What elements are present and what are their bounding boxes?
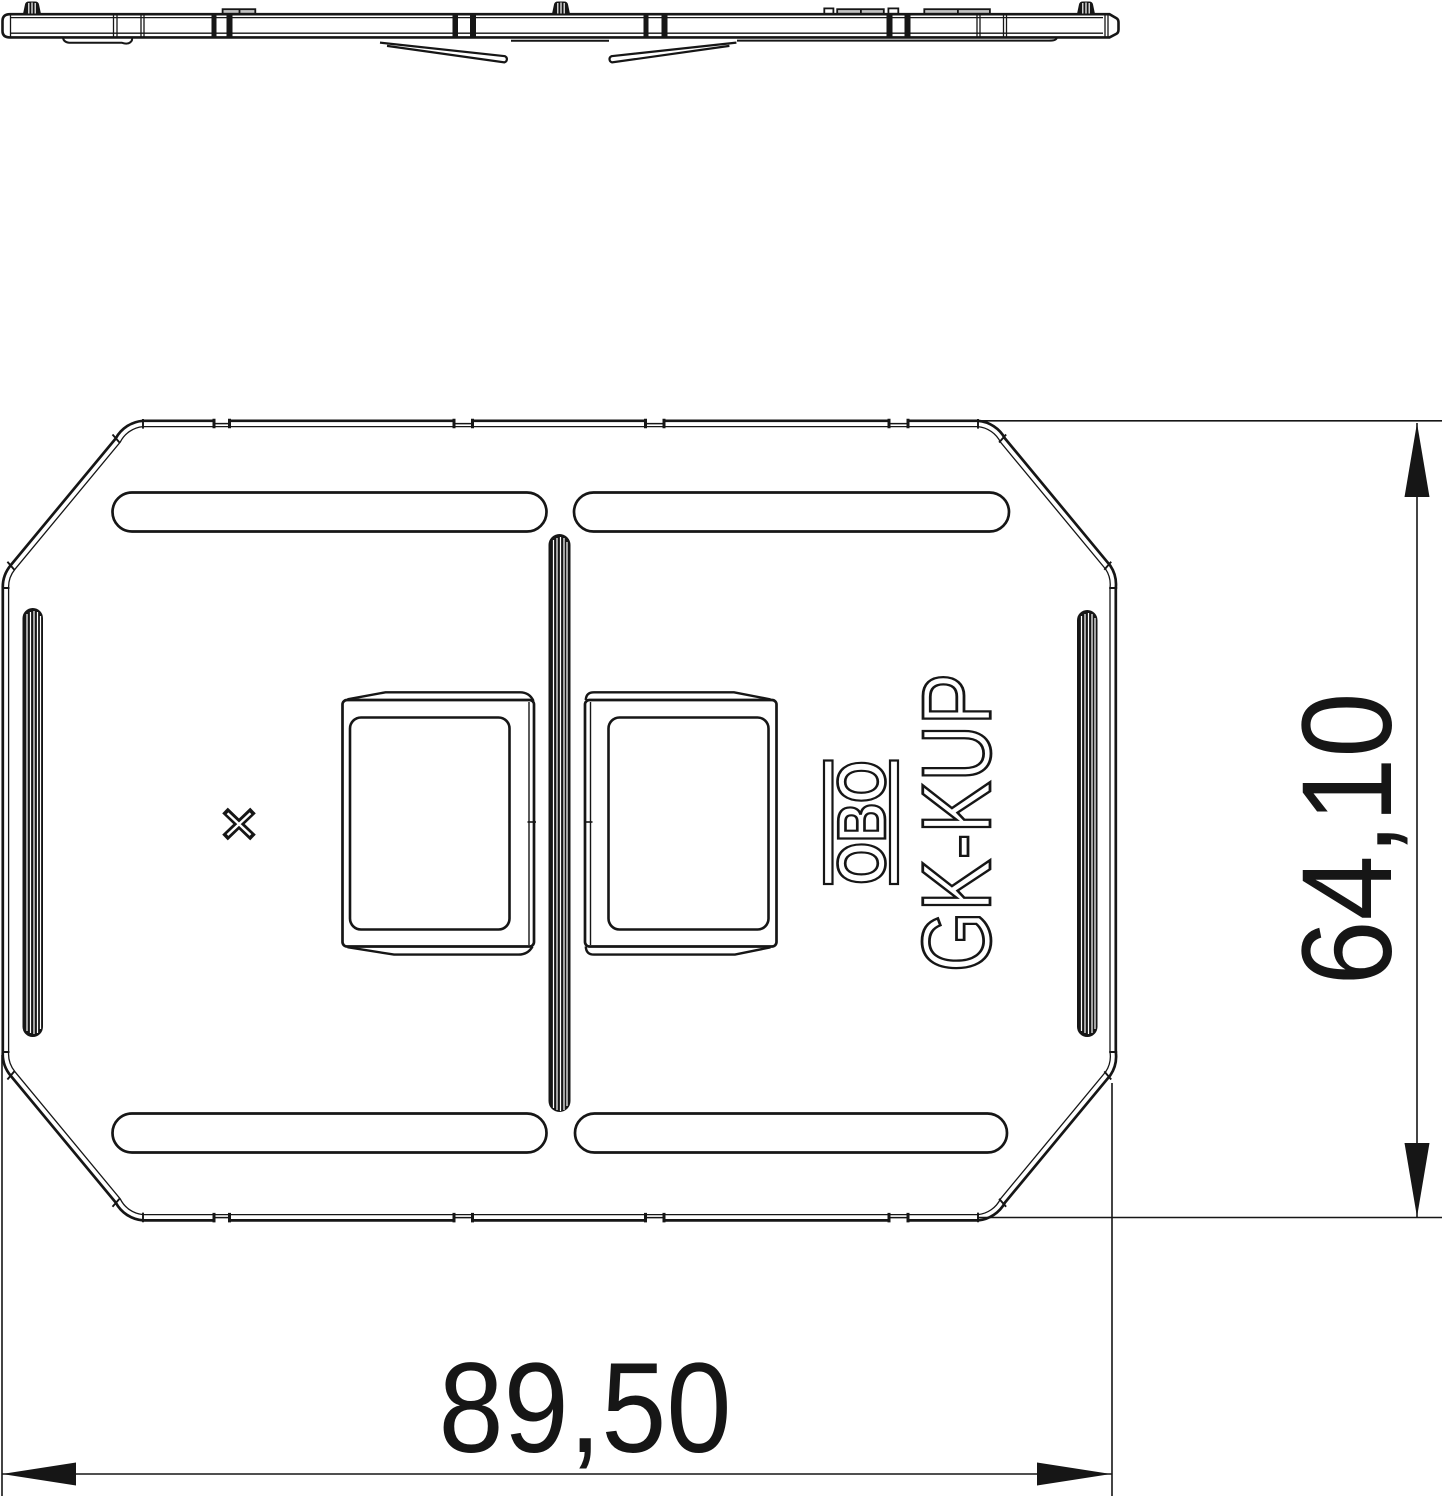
svg-text:OBO: OBO: [824, 761, 900, 885]
svg-text:GK-KUP: GK-KUP: [902, 673, 1011, 972]
svg-text:89,50: 89,50: [439, 1337, 732, 1480]
svg-text:64,10: 64,10: [1276, 693, 1419, 986]
